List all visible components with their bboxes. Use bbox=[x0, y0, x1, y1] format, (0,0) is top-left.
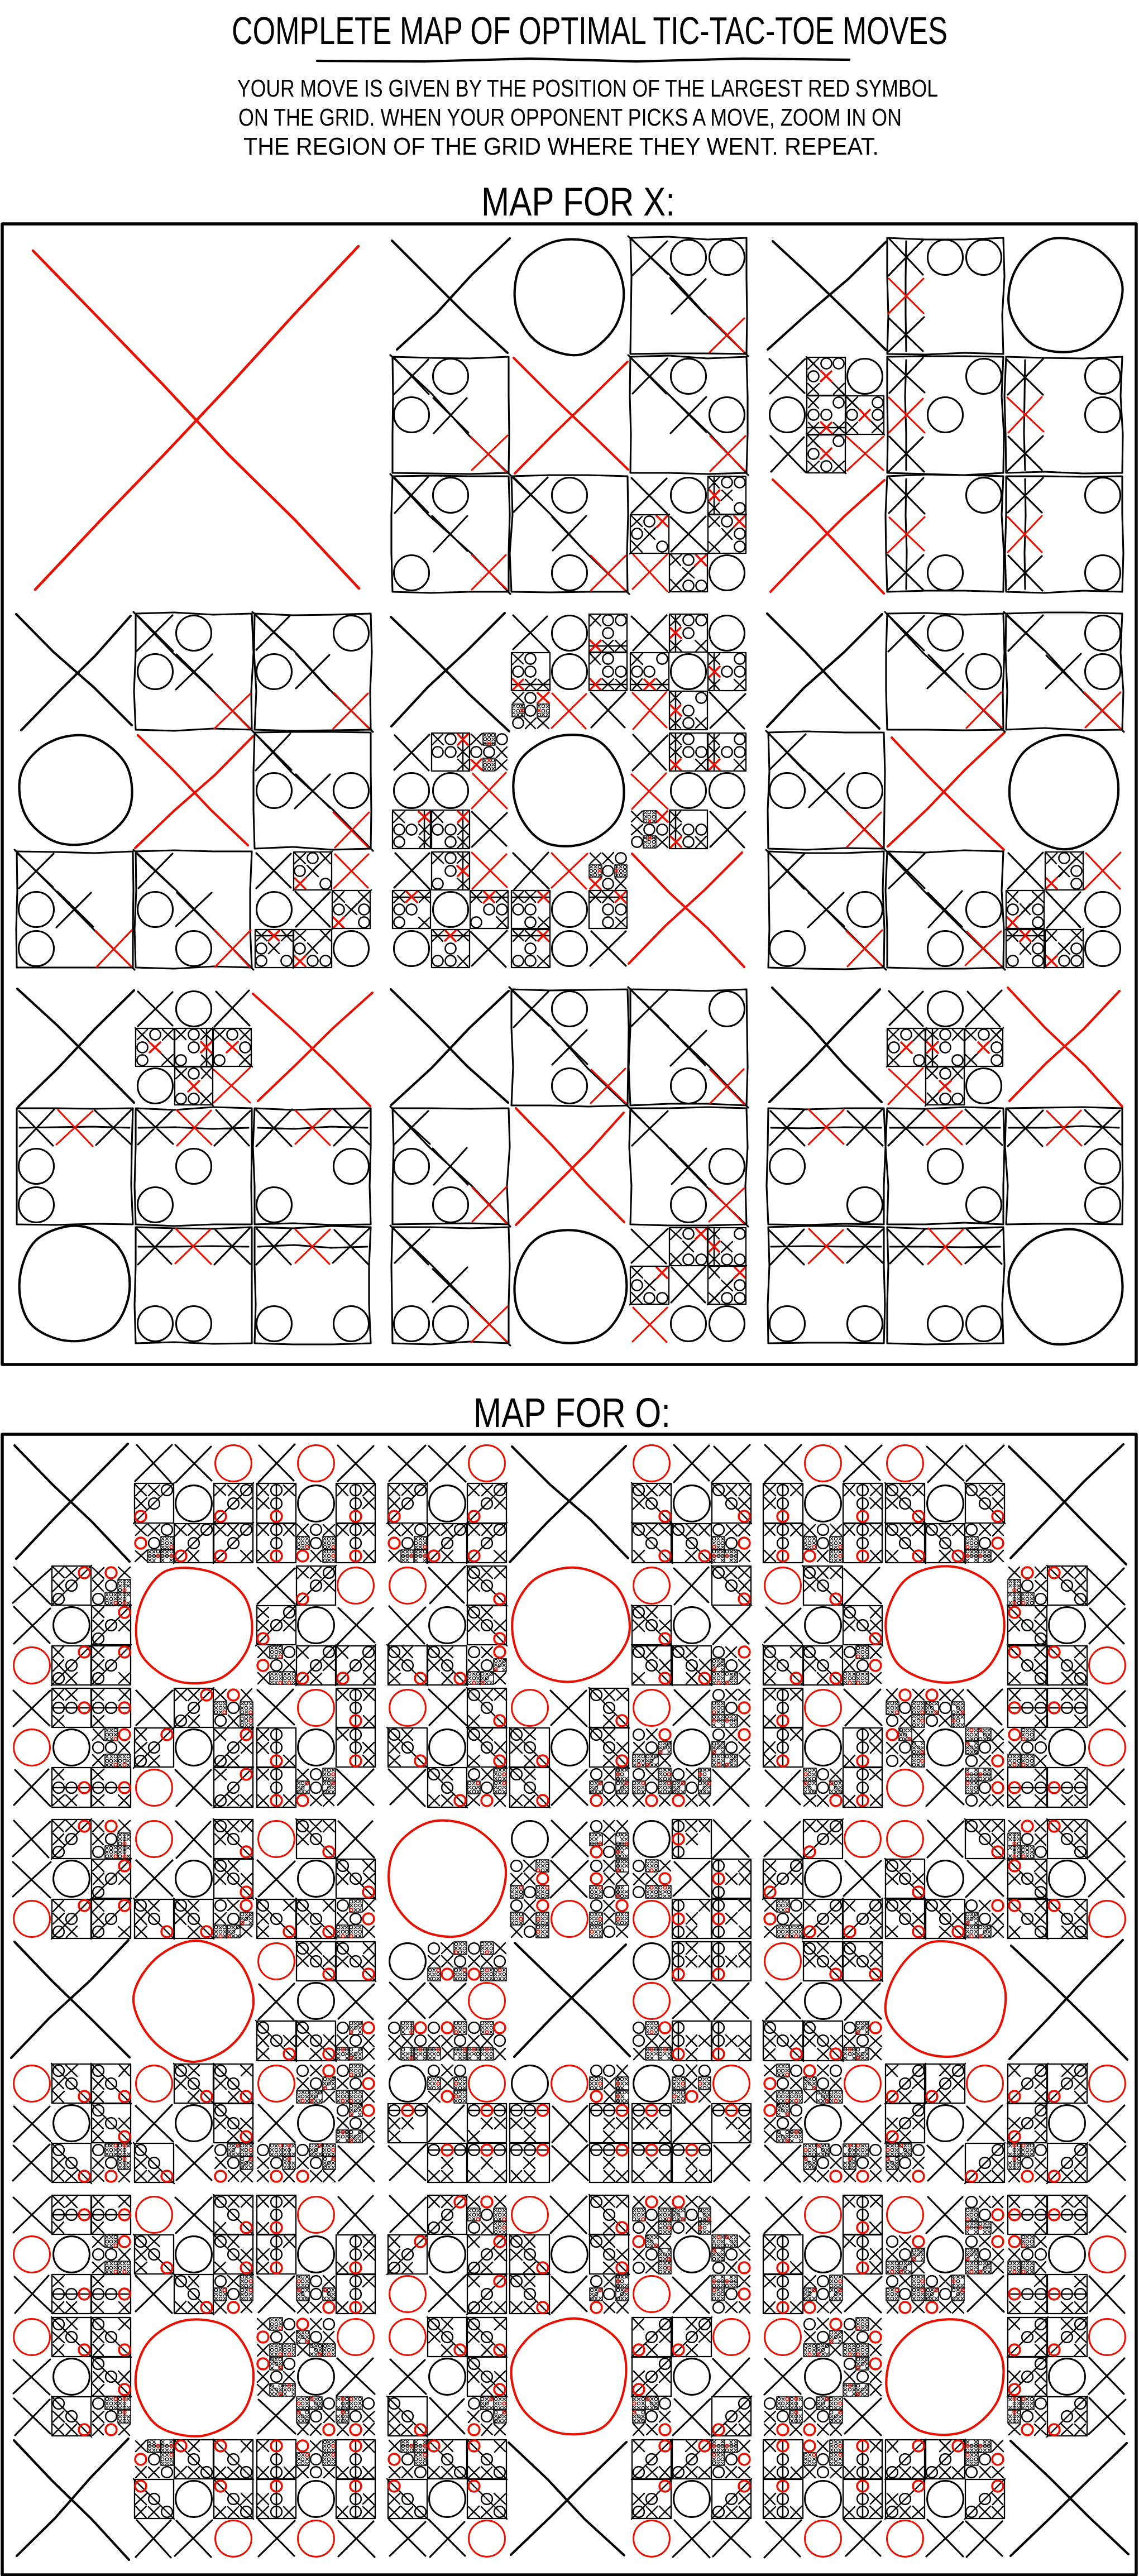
svg-text:MAP FOR X:: MAP FOR X: bbox=[481, 180, 675, 224]
svg-text:MAP FOR O:: MAP FOR O: bbox=[473, 1390, 671, 1436]
svg-text:ON THE GRID. WHEN YOUR OPPONE: ON THE GRID. WHEN YOUR OPPONENT PICKS A … bbox=[238, 104, 902, 131]
svg-text:COMPLETE MAP OF OPTIMAL TIC-TA: COMPLETE MAP OF OPTIMAL TIC-TAC-TOE MOVE… bbox=[232, 9, 947, 52]
svg-text:YOUR MOVE IS GIVEN BY THE POSI: YOUR MOVE IS GIVEN BY THE POSITION OF TH… bbox=[237, 75, 938, 102]
svg-text:THE REGION OF THE GRID WHERE T: THE REGION OF THE GRID WHERE THEY WENT. … bbox=[243, 133, 879, 160]
